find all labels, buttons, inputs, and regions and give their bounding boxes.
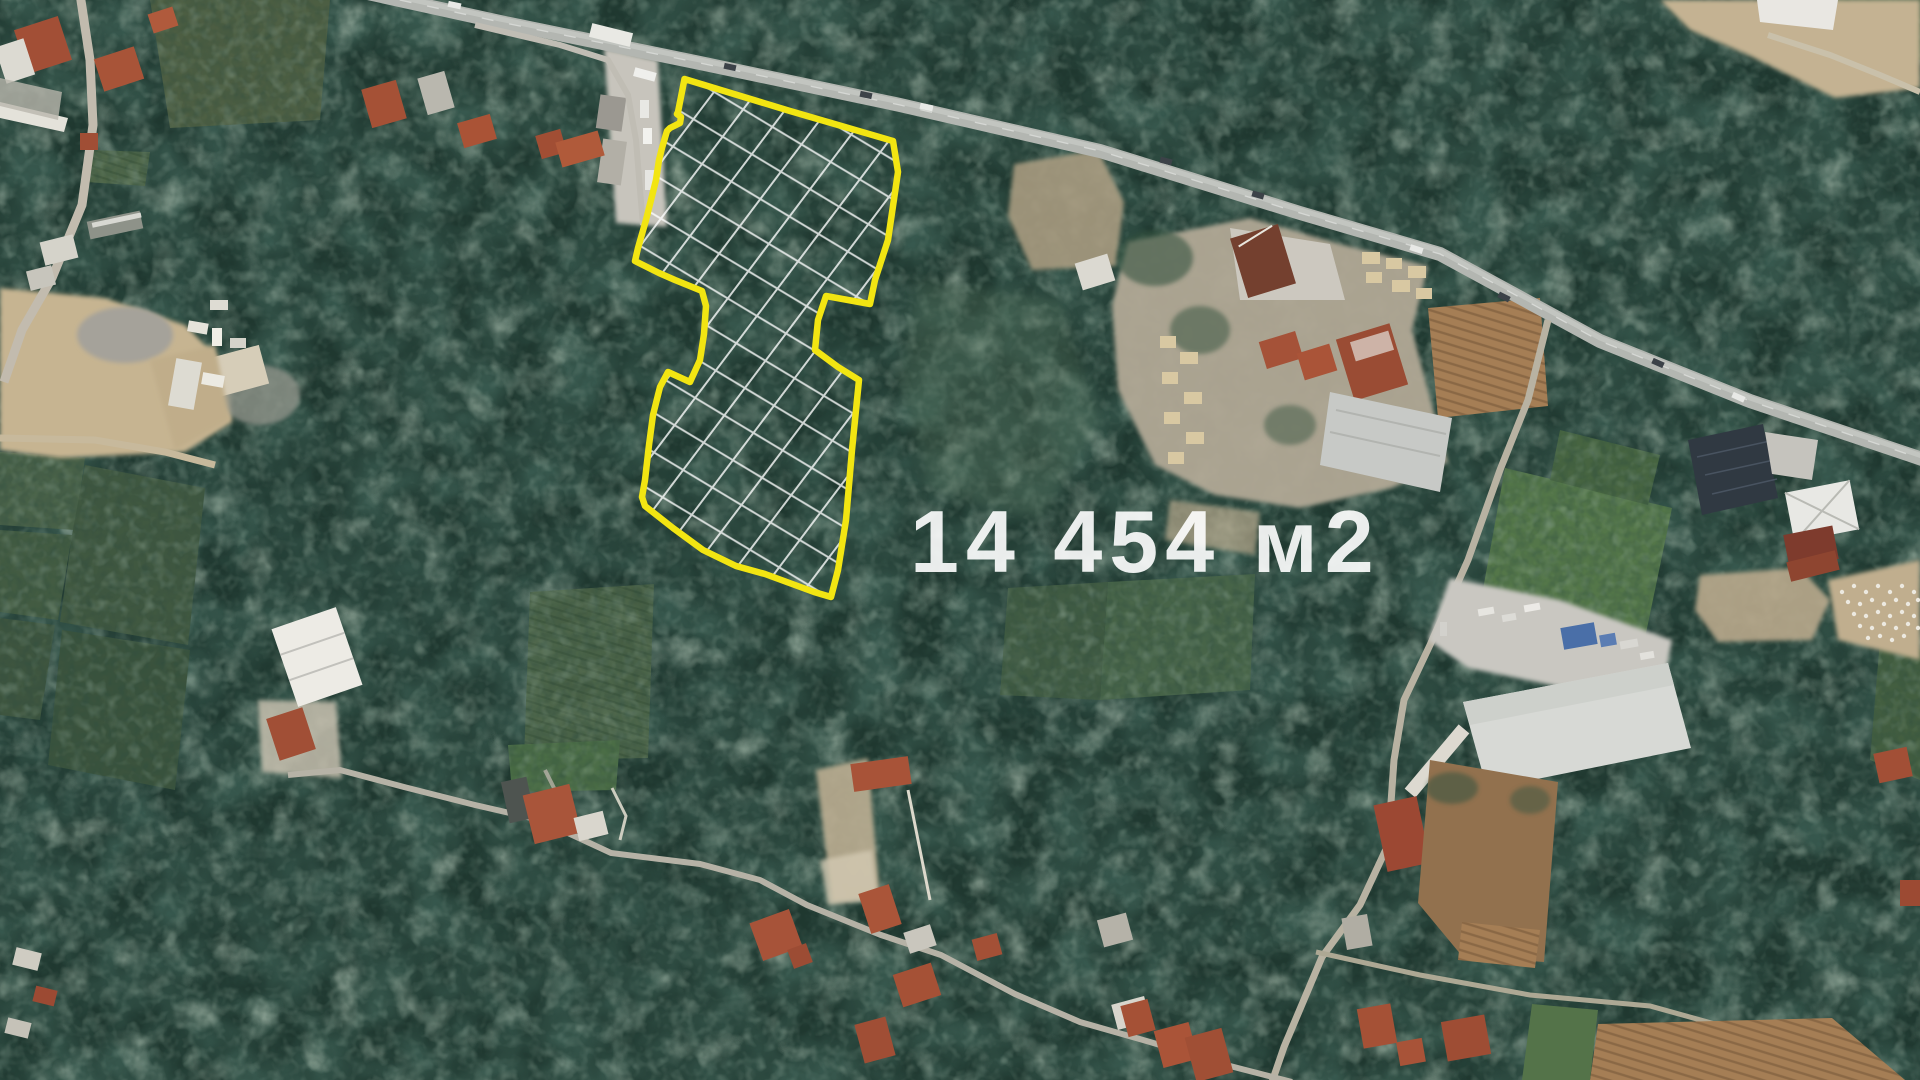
svg-text:14 454 м2: 14 454 м2: [910, 492, 1381, 591]
